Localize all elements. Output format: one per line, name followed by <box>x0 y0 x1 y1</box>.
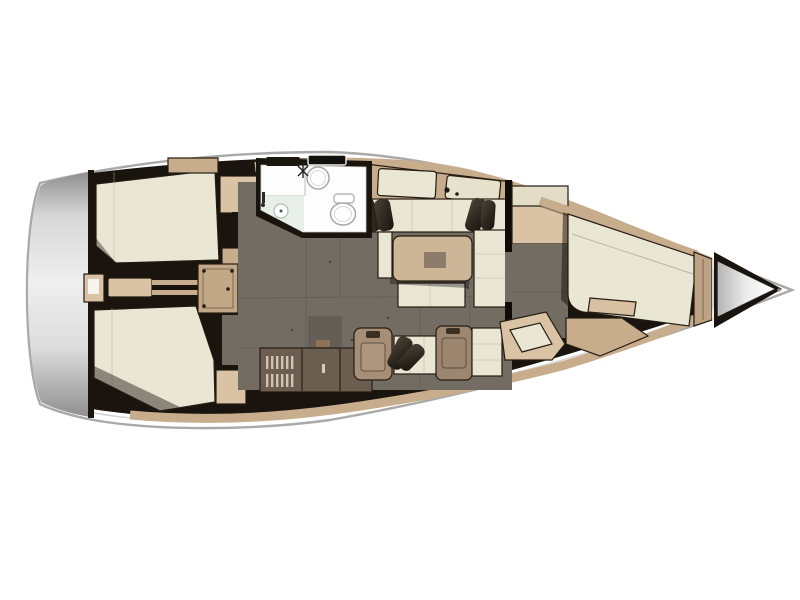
forward-door-opening <box>505 252 512 302</box>
coolbox-handle <box>366 331 380 338</box>
deck-hatch-1 <box>266 157 300 166</box>
corridor-rail-2 <box>152 290 198 295</box>
stern-locker-window <box>88 279 99 294</box>
mast-foot-bolt <box>455 192 459 196</box>
boat-floor-plan <box>0 0 800 600</box>
hatch-bolt <box>226 287 230 291</box>
shower-drain-dot <box>280 210 283 213</box>
salon-table-inset <box>424 252 446 268</box>
aft-port-locker-1 <box>168 158 218 173</box>
toilet-cistern <box>334 194 354 203</box>
galley-handle-1 <box>322 364 325 373</box>
corridor-rail-1 <box>152 280 198 285</box>
bow <box>694 252 782 328</box>
salon-bench-right <box>474 230 508 307</box>
coolbox-lid <box>361 343 385 371</box>
settee-headrest-1 <box>377 169 436 199</box>
nav-desk-handle <box>446 328 460 334</box>
hatch-bolt <box>202 269 206 273</box>
floor-hatch-handle <box>316 340 330 347</box>
nav-seat-right <box>472 328 502 376</box>
swim-platform <box>28 172 90 417</box>
shower-mixer-knob <box>261 203 265 207</box>
salon-bench-left <box>378 232 392 278</box>
nav-desk-module <box>436 326 472 380</box>
bow-fitting <box>777 288 780 291</box>
hatch-bolt <box>202 304 206 308</box>
mast-foot <box>444 187 449 192</box>
deck-hatch-2 <box>308 155 346 165</box>
aft-port-berth <box>96 170 219 263</box>
corridor-rail-wide <box>108 278 152 297</box>
hatch-bolt <box>230 269 234 273</box>
shower-mixer <box>262 192 265 203</box>
floor-plan-canvas <box>0 0 800 600</box>
